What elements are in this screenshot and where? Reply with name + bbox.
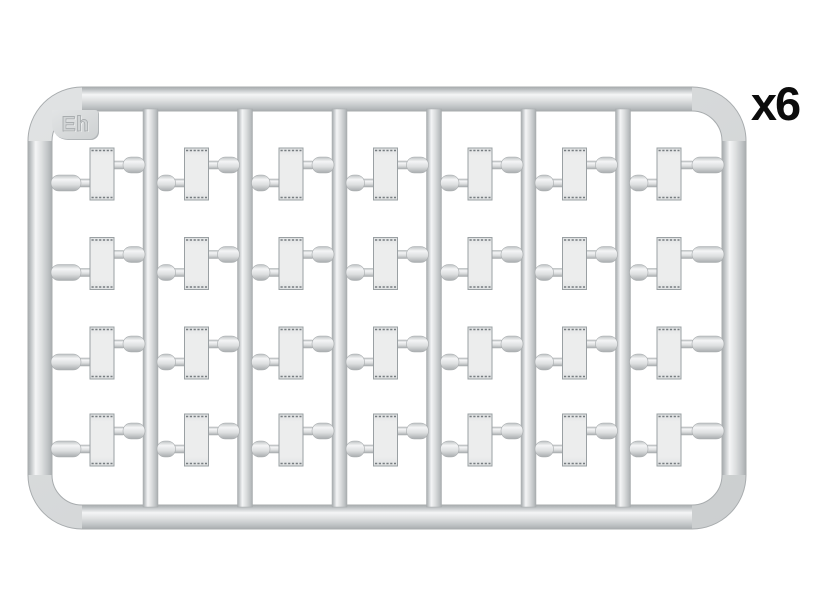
connector-capsule <box>51 441 81 457</box>
part-rectangle <box>468 148 492 200</box>
part-rectangle <box>657 327 681 379</box>
connector-capsule <box>312 247 334 263</box>
part-group <box>252 148 335 200</box>
runner-bar <box>521 109 536 507</box>
connector-capsule <box>535 441 554 457</box>
connector-capsule <box>692 157 724 173</box>
part-group <box>252 327 335 379</box>
connector-capsule <box>51 175 81 191</box>
connector-capsule <box>252 175 271 191</box>
runner-bar <box>143 109 158 507</box>
part-group <box>441 148 524 200</box>
part-group <box>51 327 145 379</box>
part-rectangle <box>90 148 114 200</box>
part-rectangle <box>279 148 303 200</box>
part-group <box>51 148 145 200</box>
part-group <box>441 327 524 379</box>
connector-capsule <box>123 157 145 173</box>
connector-capsule <box>441 175 460 191</box>
part-group <box>346 327 429 379</box>
part-group <box>157 238 240 290</box>
connector-capsule <box>630 265 649 281</box>
part-rectangle <box>657 414 681 466</box>
sprue-diagram: Eh x6 <box>0 0 820 615</box>
part-rectangle <box>185 148 209 200</box>
part-group <box>630 148 725 200</box>
connector-capsule <box>346 175 365 191</box>
part-group <box>252 238 335 290</box>
part-rectangle <box>563 148 587 200</box>
connector-capsule <box>51 354 81 370</box>
connector-capsule <box>501 157 523 173</box>
connector-capsule <box>346 354 365 370</box>
part-rectangle <box>374 238 398 290</box>
connector-capsule <box>312 336 334 352</box>
connector-capsule <box>51 265 81 281</box>
connector-capsule <box>157 265 176 281</box>
part-group <box>157 148 240 200</box>
connector-capsule <box>157 354 176 370</box>
connector-capsule <box>441 441 460 457</box>
part-group <box>346 148 429 200</box>
connector-capsule <box>441 354 460 370</box>
part-rectangle <box>468 414 492 466</box>
connector-capsule <box>596 423 618 439</box>
part-group <box>346 414 429 466</box>
runner-bar <box>616 109 631 507</box>
part-rectangle <box>185 238 209 290</box>
part-group <box>630 327 725 379</box>
runner-bar <box>332 109 347 507</box>
part-rectangle <box>374 414 398 466</box>
connector-capsule <box>692 247 724 263</box>
connector-capsule <box>123 247 145 263</box>
connector-capsule <box>501 336 523 352</box>
connector-capsule <box>252 441 271 457</box>
connector-capsule <box>630 441 649 457</box>
part-rectangle <box>90 327 114 379</box>
part-rectangle <box>374 148 398 200</box>
part-group <box>157 414 240 466</box>
connector-capsule <box>346 441 365 457</box>
connector-capsule <box>218 423 240 439</box>
connector-capsule <box>218 336 240 352</box>
connector-capsule <box>312 423 334 439</box>
part-group <box>157 327 240 379</box>
part-group <box>535 238 618 290</box>
connector-capsule <box>123 336 145 352</box>
part-rectangle <box>657 238 681 290</box>
part-group <box>630 238 725 290</box>
part-rectangle <box>279 327 303 379</box>
part-group <box>535 414 618 466</box>
connector-capsule <box>596 247 618 263</box>
connector-capsule <box>123 423 145 439</box>
connector-capsule <box>501 247 523 263</box>
connector-capsule <box>157 441 176 457</box>
runner-bar <box>427 109 442 507</box>
part-rectangle <box>279 238 303 290</box>
connector-capsule <box>501 423 523 439</box>
part-rectangle <box>185 414 209 466</box>
connector-capsule <box>218 247 240 263</box>
connector-capsule <box>312 157 334 173</box>
part-rectangle <box>468 327 492 379</box>
connector-capsule <box>252 354 271 370</box>
runner-bar <box>238 109 253 507</box>
connector-capsule <box>218 157 240 173</box>
part-group <box>535 327 618 379</box>
part-rectangle <box>468 238 492 290</box>
sprue-frame <box>0 0 820 615</box>
connector-capsule <box>630 354 649 370</box>
connector-capsule <box>535 175 554 191</box>
part-rectangle <box>374 327 398 379</box>
part-rectangle <box>563 327 587 379</box>
part-rectangle <box>185 327 209 379</box>
connector-capsule <box>407 157 429 173</box>
part-rectangle <box>90 238 114 290</box>
connector-capsule <box>596 336 618 352</box>
part-rectangle <box>279 414 303 466</box>
part-group <box>252 414 335 466</box>
part-rectangle <box>90 414 114 466</box>
part-group <box>630 414 725 466</box>
connector-capsule <box>535 354 554 370</box>
connector-capsule <box>596 157 618 173</box>
frame-bar-left <box>28 141 52 475</box>
frame-bar-right <box>722 141 746 475</box>
connector-capsule <box>630 175 649 191</box>
part-rectangle <box>563 414 587 466</box>
frame-bar-bottom <box>82 505 692 529</box>
part-group <box>346 238 429 290</box>
part-rectangle <box>563 238 587 290</box>
part-group <box>535 148 618 200</box>
connector-capsule <box>407 423 429 439</box>
part-group <box>441 238 524 290</box>
frame-bar-top <box>82 87 692 111</box>
quantity-label: x6 <box>733 80 817 132</box>
part-group <box>441 414 524 466</box>
connector-capsule <box>535 265 554 281</box>
connector-capsule <box>252 265 271 281</box>
connector-capsule <box>157 175 176 191</box>
sprue-code-tab: Eh <box>52 110 99 140</box>
connector-capsule <box>692 423 724 439</box>
connector-capsule <box>692 336 724 352</box>
part-rectangle <box>657 148 681 200</box>
sprue-code-label: Eh <box>62 113 90 137</box>
connector-capsule <box>441 265 460 281</box>
part-group <box>51 414 145 466</box>
connector-capsule <box>407 336 429 352</box>
part-group <box>51 238 145 290</box>
connector-capsule <box>346 265 365 281</box>
connector-capsule <box>407 247 429 263</box>
